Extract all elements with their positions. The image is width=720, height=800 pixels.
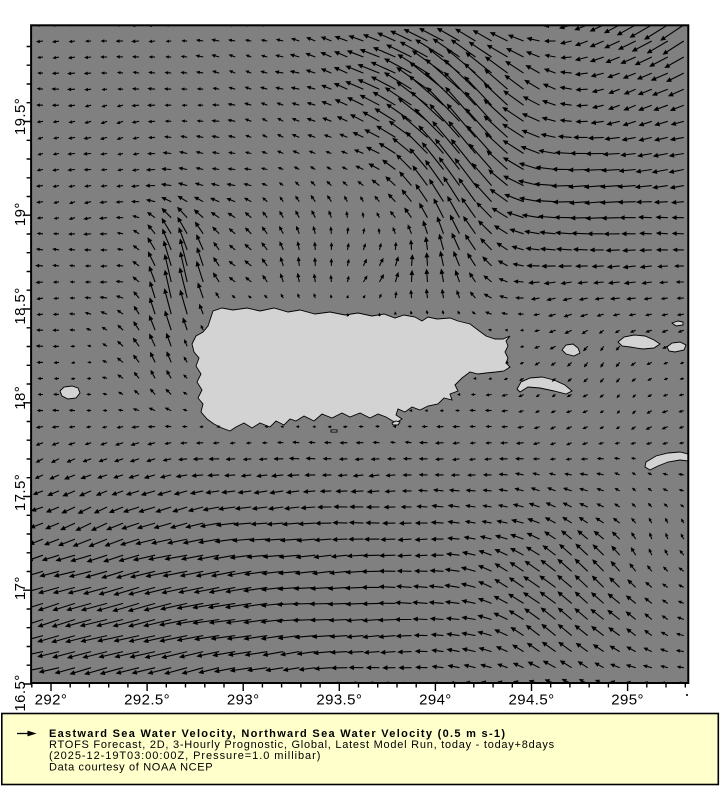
svg-text:Data courtesy of NOAA NCEP: Data courtesy of NOAA NCEP [49, 761, 213, 773]
svg-text:16.5°: 16.5° [12, 674, 29, 711]
svg-text:294.5°: 294.5° [509, 692, 555, 709]
svg-text:17°: 17° [12, 576, 29, 600]
svg-text:Eastward Sea Water Velocity, N: Eastward Sea Water Velocity, Northward S… [49, 728, 506, 740]
svg-text:19.5°: 19.5° [12, 98, 29, 135]
svg-text:293.5°: 293.5° [316, 692, 362, 709]
svg-text:292°: 292° [35, 692, 68, 709]
svg-text:294°: 294° [419, 692, 452, 709]
svg-text:18°: 18° [12, 386, 29, 410]
svg-text:295°: 295° [611, 692, 644, 709]
svg-text:17.5°: 17.5° [12, 474, 29, 511]
svg-text:19°: 19° [12, 202, 29, 226]
svg-text:18.5°: 18.5° [12, 287, 29, 324]
svg-text:292.5°: 292.5° [124, 692, 170, 709]
svg-text:293°: 293° [227, 692, 260, 709]
